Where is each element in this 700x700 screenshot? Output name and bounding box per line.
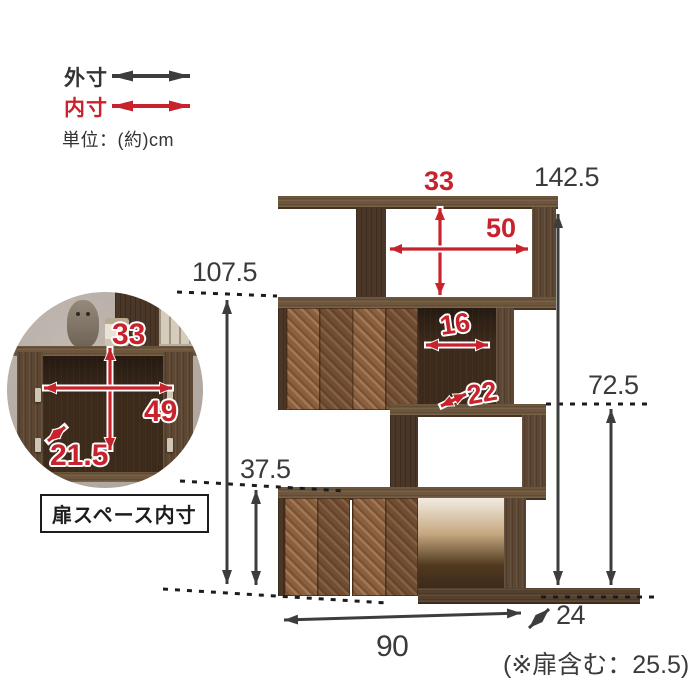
dim-middle-height: 72.5 xyxy=(588,370,639,401)
inset-left-wall xyxy=(17,352,43,476)
product-dimension-diagram: 外寸 内寸 単位：(約)cm 142.5 107.5 72.5 37.5 90 … xyxy=(0,0,700,700)
level3-right-wall xyxy=(522,415,546,487)
dim-inset-width: 49 xyxy=(144,395,177,429)
inset-hinge xyxy=(35,438,41,452)
dim-upper-height: 107.5 xyxy=(192,257,257,288)
dim-middle-opening-width: 16 xyxy=(438,307,472,342)
bottom-door-right xyxy=(352,498,418,596)
dim-depth-note: (※扉含む：25.5) xyxy=(503,645,689,681)
inset-owl-figurine xyxy=(67,300,99,348)
legend-outer-label: 外寸 xyxy=(64,62,108,92)
inset-books xyxy=(159,292,203,344)
inset-compartment-bottom xyxy=(17,472,193,482)
arrow-depth-24 xyxy=(529,609,549,628)
bottom-right-wall xyxy=(504,498,526,588)
dim-lower-height: 37.5 xyxy=(240,454,291,485)
shelf-top-divider xyxy=(356,207,386,297)
inset-caption: 扉スペース内寸 xyxy=(40,494,209,533)
level2-left-wall xyxy=(278,308,286,410)
dim-width: 90 xyxy=(376,630,408,664)
dim-top-compartment-height: 33 xyxy=(424,166,454,197)
arrow-width-90 xyxy=(284,613,521,620)
shelf-top-right-panel xyxy=(532,207,556,297)
inset-owl-eyes xyxy=(76,312,80,316)
center-spine xyxy=(390,415,418,487)
legend-inner-label: 内寸 xyxy=(64,92,108,122)
legend-unit-label: 単位：(約)cm xyxy=(62,126,174,152)
dim-middle-shelf-depth: 22 xyxy=(465,376,500,412)
dim-total-height: 142.5 xyxy=(534,162,599,193)
dim-inset-height: 33 xyxy=(112,318,145,352)
middle-door-chevron xyxy=(286,308,418,410)
base-board xyxy=(418,588,640,604)
shelf-top-board xyxy=(278,196,558,209)
dim-top-compartment-width: 50 xyxy=(486,213,516,244)
inset-hinge xyxy=(35,388,41,402)
dim-inset-depth: 21.5 xyxy=(50,439,108,473)
level2-right-wall xyxy=(496,308,514,404)
bottom-open-compartment xyxy=(418,498,504,588)
inset-hinge xyxy=(167,438,173,452)
bottom-door-left xyxy=(284,498,350,596)
dim-depth: 24 xyxy=(556,600,585,631)
